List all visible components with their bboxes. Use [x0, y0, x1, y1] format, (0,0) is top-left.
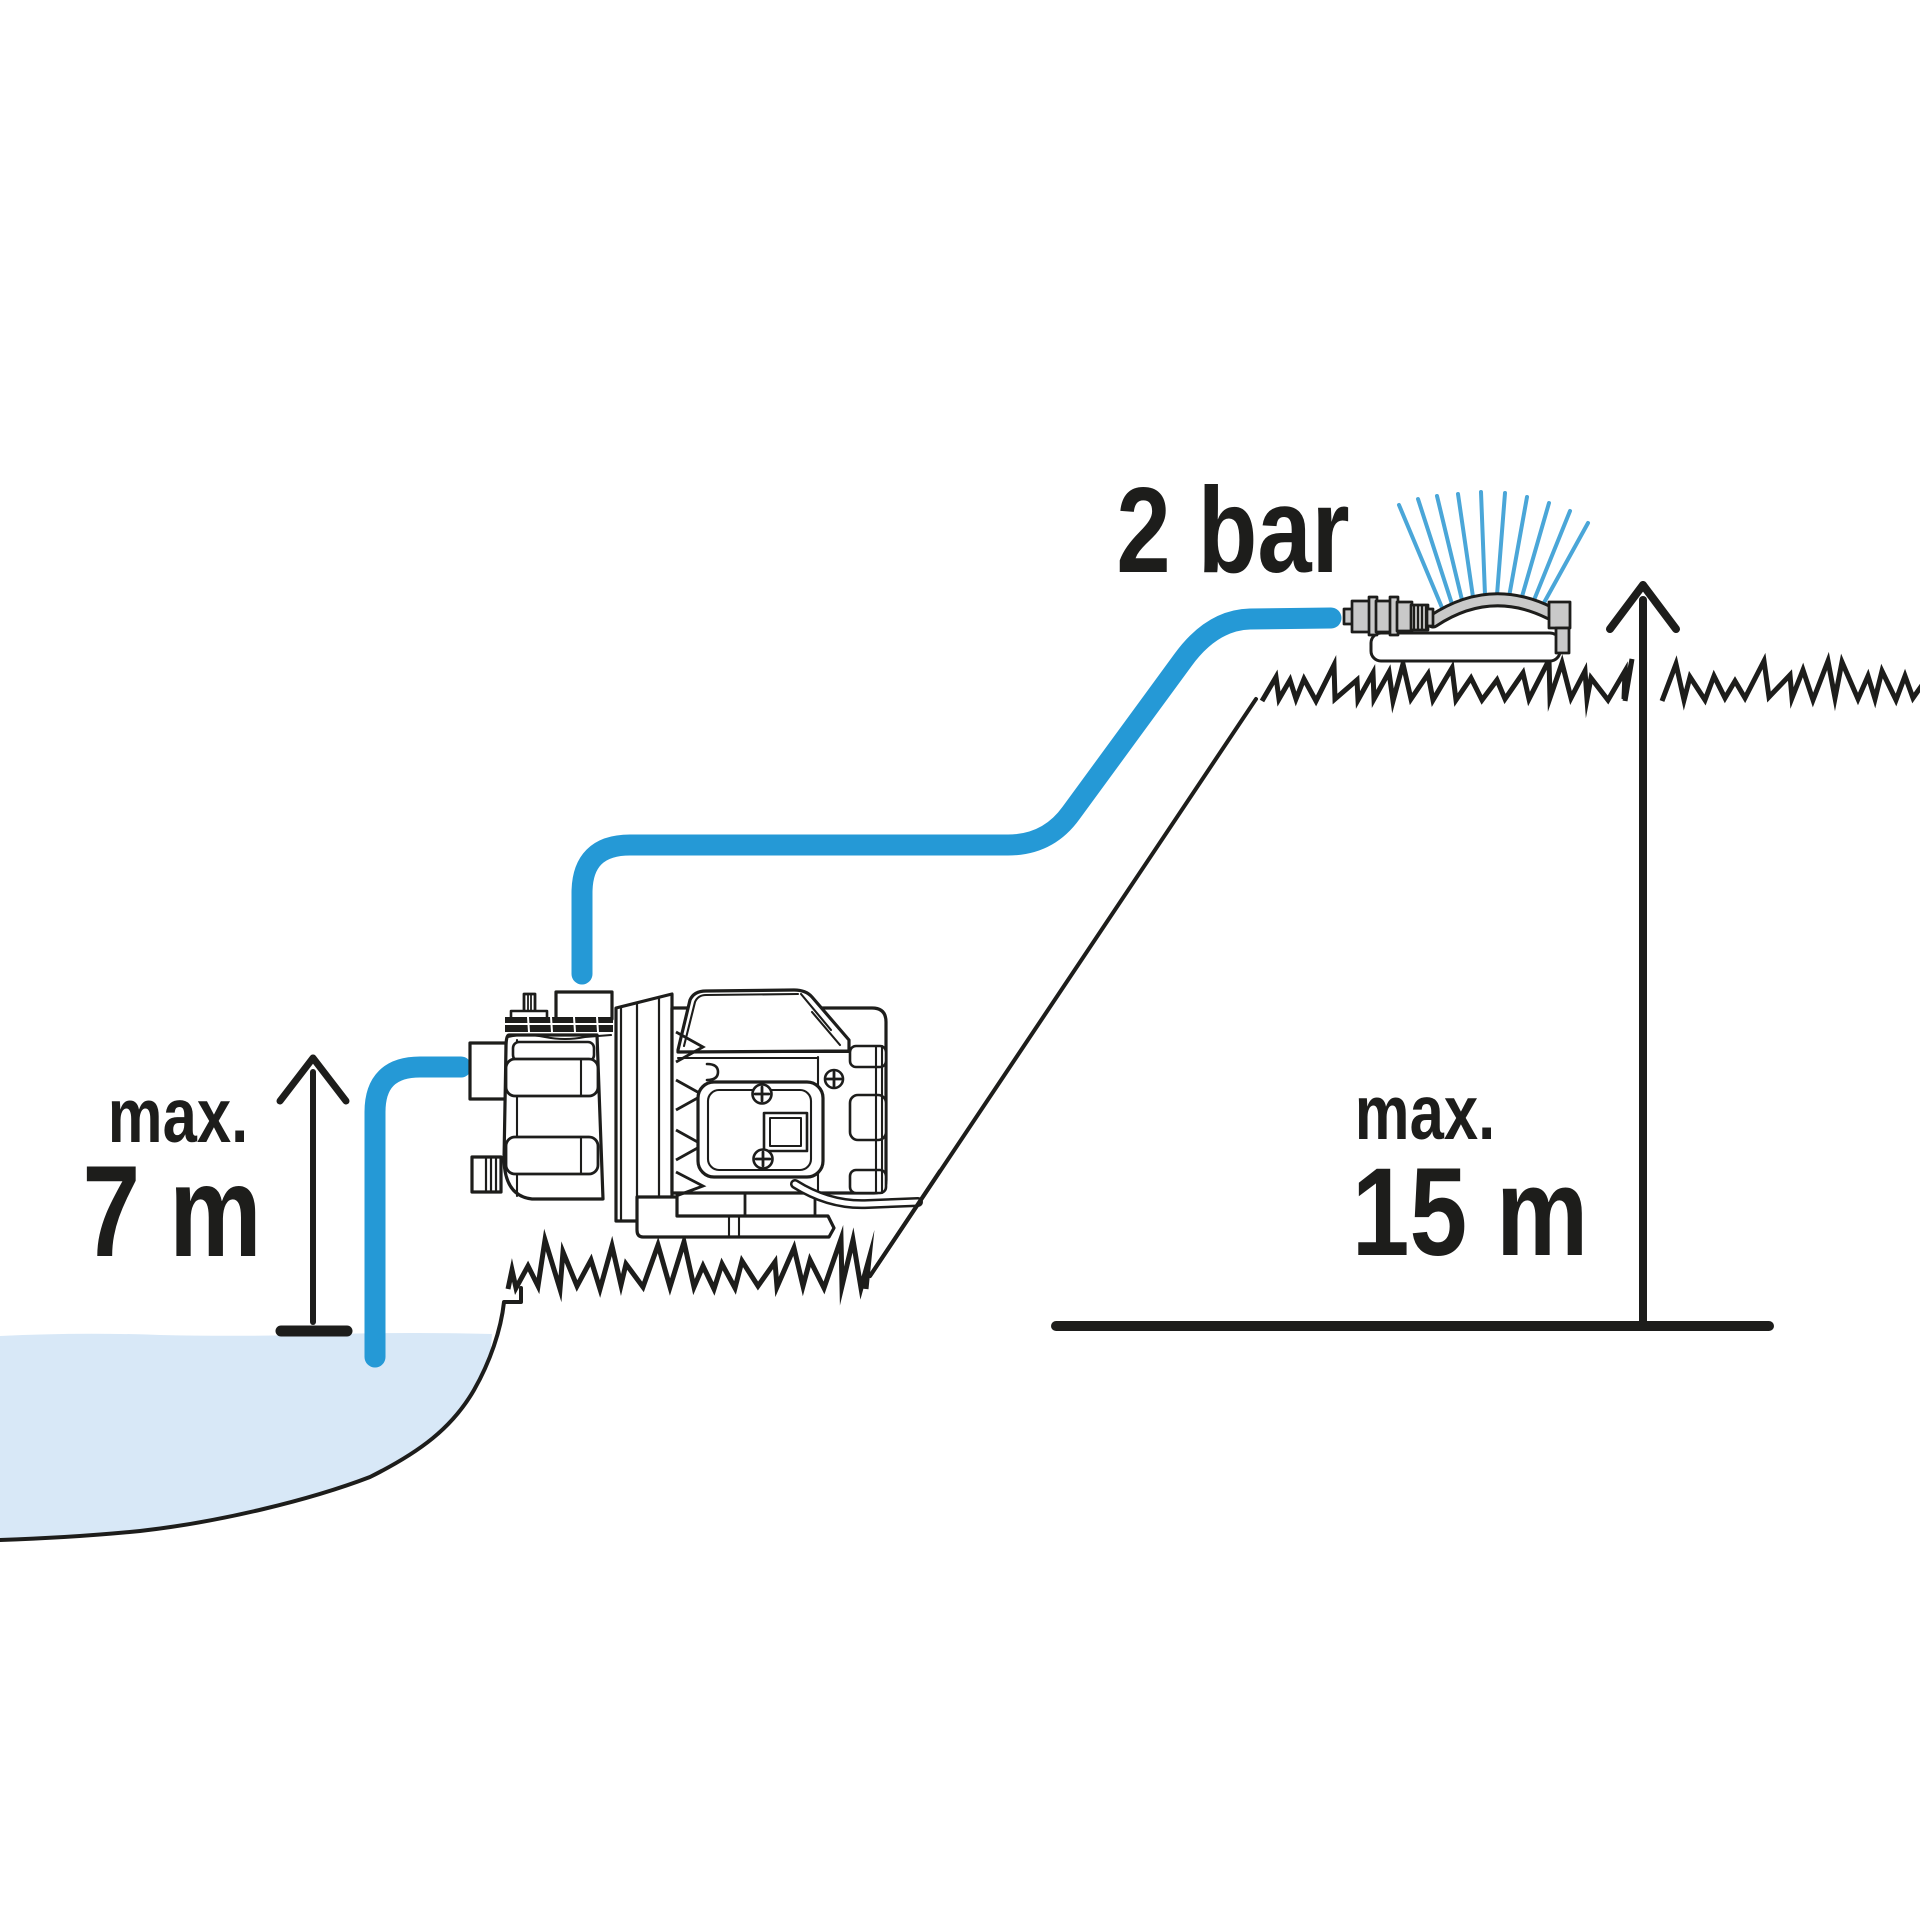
svg-text:7 m: 7 m	[82, 1138, 261, 1284]
svg-text:15 m: 15 m	[1352, 1143, 1588, 1282]
svg-text:2 bar: 2 bar	[1116, 463, 1349, 599]
